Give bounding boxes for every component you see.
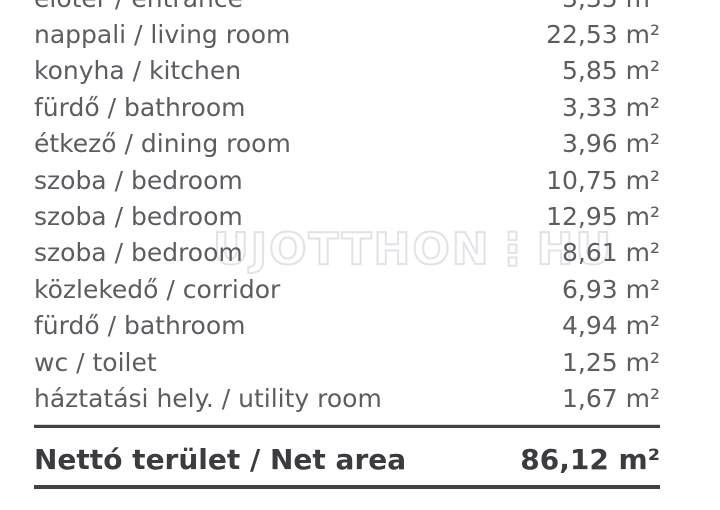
area-table-sheet: UJOTTHON⋮HU előtér / entrance 3,35 m² na… xyxy=(0,0,720,510)
table-row: wc / toilet 1,25 m² xyxy=(34,344,660,380)
total-value: 86,12 m² xyxy=(520,443,660,476)
table-row: étkező / dining room 3,96 m² xyxy=(34,126,660,162)
table-row: szoba / bedroom 10,75 m² xyxy=(34,162,660,198)
room-label: szoba / bedroom xyxy=(34,204,243,229)
area-value: 8,61 m² xyxy=(562,240,660,265)
table-row: közlekedő / corridor 6,93 m² xyxy=(34,271,660,307)
area-value: 5,85 m² xyxy=(562,58,660,83)
table-row: háztatási hely. / utility room 1,67 m² xyxy=(34,380,660,416)
room-label: konyha / kitchen xyxy=(34,58,241,83)
room-label: wc / toilet xyxy=(34,350,157,375)
area-value: 4,94 m² xyxy=(562,313,660,338)
area-value: 1,25 m² xyxy=(562,350,660,375)
area-value: 1,67 m² xyxy=(562,386,660,411)
room-label: szoba / bedroom xyxy=(34,168,243,193)
room-label: háztatási hely. / utility room xyxy=(34,386,382,411)
area-value: 6,93 m² xyxy=(562,277,660,302)
table-row: szoba / bedroom 12,95 m² xyxy=(34,198,660,234)
room-label: közlekedő / corridor xyxy=(34,277,280,302)
area-value: 22,53 m² xyxy=(546,22,660,47)
area-value: 10,75 m² xyxy=(546,168,660,193)
table-row: fürdő / bathroom 3,33 m² xyxy=(34,89,660,125)
table-row: konyha / kitchen 5,85 m² xyxy=(34,53,660,89)
total-label: Nettó terület / Net area xyxy=(34,443,406,476)
table-row: nappali / living room 22,53 m² xyxy=(34,16,660,52)
table-row: előtér / entrance 3,35 m² xyxy=(34,0,660,16)
room-label: fürdő / bathroom xyxy=(34,95,245,120)
divider-bottom xyxy=(34,485,660,489)
area-value: 3,33 m² xyxy=(562,95,660,120)
total-row: Nettó terület / Net area 86,12 m² xyxy=(34,437,660,481)
table-row: szoba / bedroom 8,61 m² xyxy=(34,235,660,271)
room-label: étkező / dining room xyxy=(34,131,291,156)
divider-top xyxy=(34,424,660,428)
room-label: előtér / entrance xyxy=(34,0,243,11)
room-label: nappali / living room xyxy=(34,22,290,47)
area-value: 3,96 m² xyxy=(562,131,660,156)
room-area-table: előtér / entrance 3,35 m² nappali / livi… xyxy=(34,0,660,417)
table-row: fürdő / bathroom 4,94 m² xyxy=(34,308,660,344)
room-label: szoba / bedroom xyxy=(34,240,243,265)
area-value: 12,95 m² xyxy=(546,204,660,229)
room-label: fürdő / bathroom xyxy=(34,313,245,338)
area-value: 3,35 m² xyxy=(562,0,660,11)
